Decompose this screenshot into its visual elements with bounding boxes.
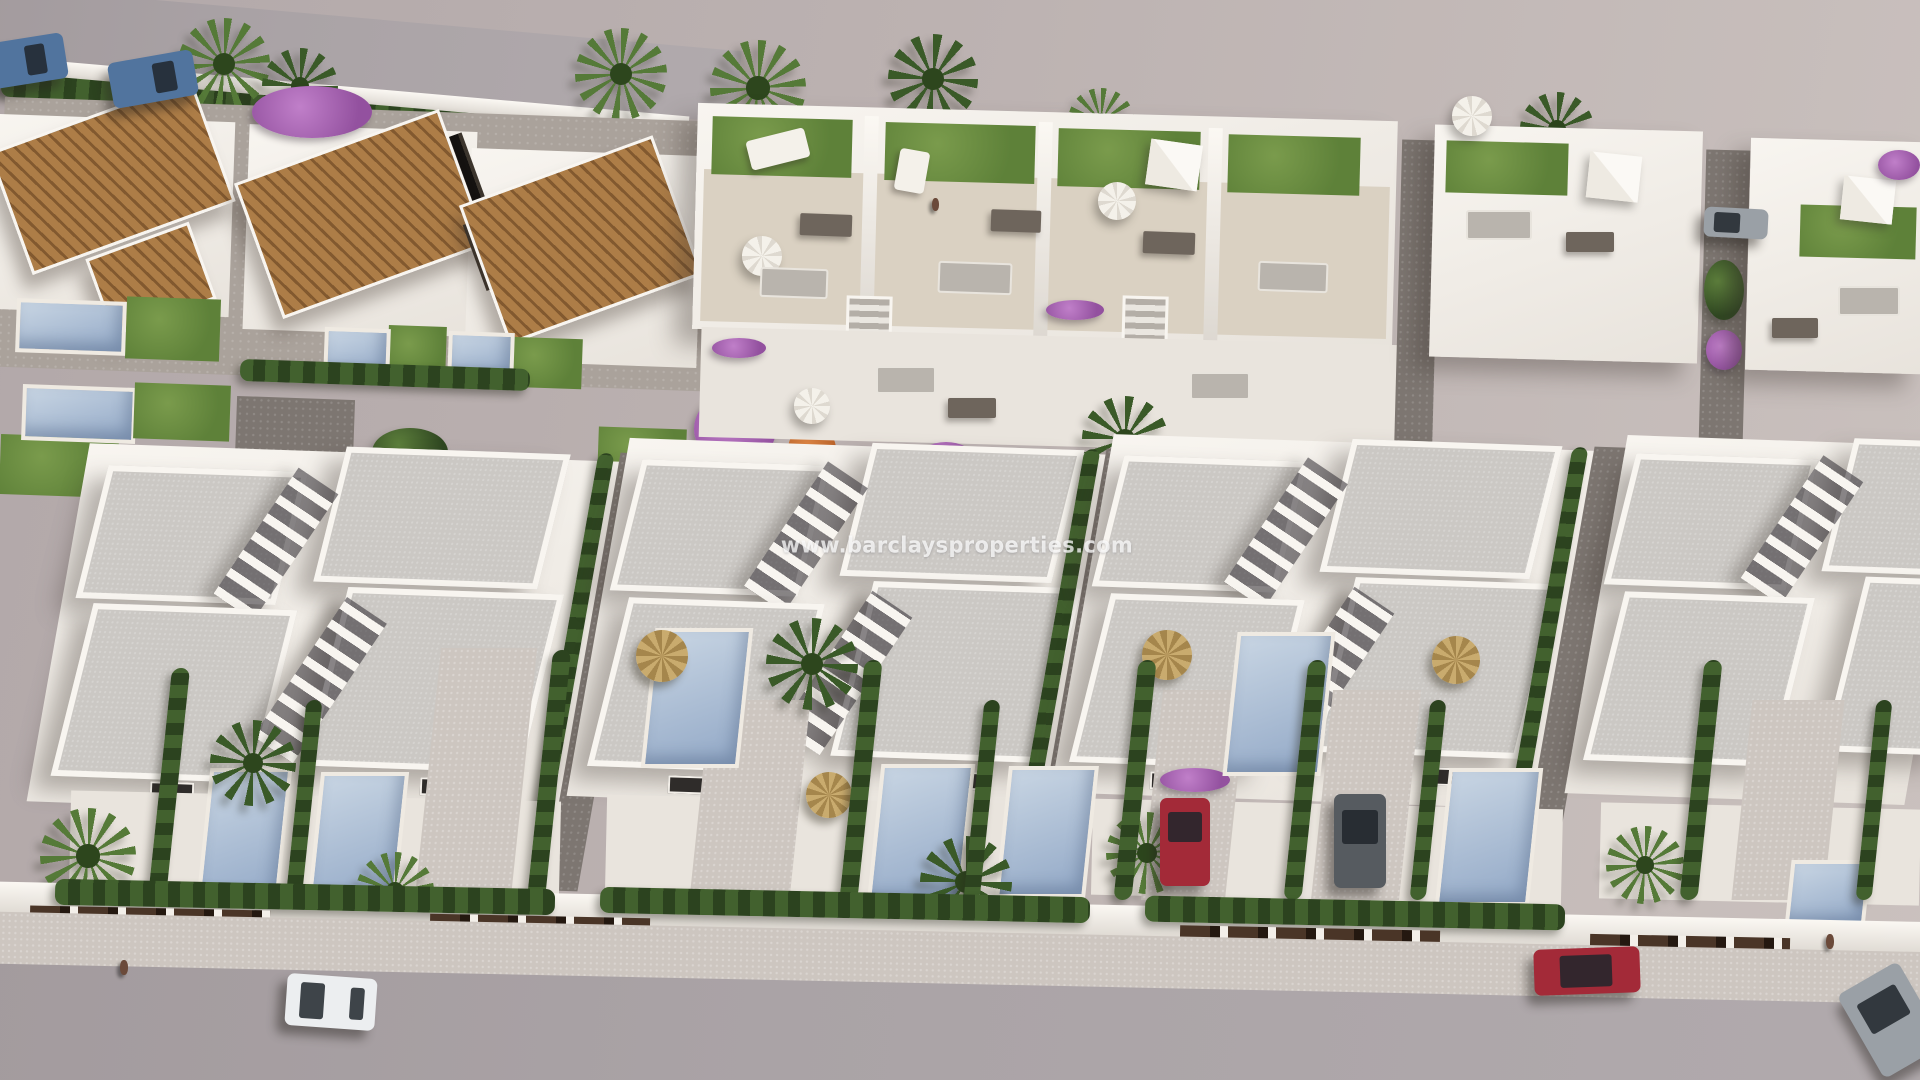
silver-car (1703, 206, 1768, 239)
swimming-pool (15, 298, 127, 356)
outdoor-sofa (1257, 261, 1328, 293)
aerial-development-render: www.barclaysproperties.com (0, 0, 1920, 1080)
car-roof-glass (1559, 954, 1612, 988)
white-parasol (1452, 96, 1492, 136)
white-parasol (1840, 175, 1896, 224)
flat-roof (839, 443, 1084, 583)
car-windshield (1168, 812, 1202, 842)
dining-table (1143, 231, 1196, 255)
dining-table (1772, 318, 1818, 338)
straw-parasol (806, 772, 852, 818)
white-parasol (1145, 139, 1203, 192)
outdoor-sofa (937, 261, 1012, 296)
planter-purple-flowers (712, 338, 766, 358)
dining-table (991, 209, 1042, 233)
palm-tree (575, 28, 667, 120)
watermark: www.barclaysproperties.com (781, 534, 1133, 559)
roof-planter-purple (1878, 150, 1920, 180)
alley-bush-purple (1706, 330, 1742, 370)
palm-tree (1606, 826, 1684, 904)
planter-purple-flowers (1046, 300, 1104, 320)
garden-lawn (125, 296, 221, 361)
roof-terrace-lawn (1227, 134, 1360, 195)
swimming-pool (21, 384, 137, 444)
straw-parasol (636, 630, 688, 682)
banana-palm (210, 720, 296, 806)
car-windshield (151, 60, 178, 93)
carport-planter-purple (1160, 768, 1230, 792)
outdoor-sofa (1190, 372, 1250, 400)
bougainvillea-bush (252, 86, 372, 138)
white-parasol (794, 388, 830, 424)
dark-parked-car (1334, 794, 1386, 888)
car-rear-window (349, 987, 365, 1020)
car-windshield (1342, 810, 1378, 844)
outdoor-sofa (876, 366, 936, 394)
outdoor-sofa (759, 267, 828, 299)
pedestrian (932, 198, 939, 211)
dining-table (948, 398, 996, 418)
car-windshield (299, 982, 325, 1020)
outdoor-sofa (1466, 210, 1532, 240)
car-windshield (24, 43, 48, 76)
flat-roof (313, 447, 570, 590)
car-windshield (1856, 984, 1911, 1035)
outdoor-sofa (1838, 286, 1900, 316)
swimming-pool (1435, 768, 1544, 906)
dining-table (1566, 232, 1614, 252)
dining-table (800, 213, 853, 237)
alley-bush (1704, 260, 1744, 320)
pedestrian (120, 960, 128, 975)
straw-parasol (1432, 636, 1480, 684)
banana-palm (766, 618, 858, 710)
flat-roof (1319, 439, 1562, 579)
car-windshield (1714, 212, 1741, 233)
white-moving-car (284, 973, 377, 1031)
pedestrian (1826, 934, 1834, 949)
white-parasol (1098, 182, 1136, 220)
red-parked-car (1160, 798, 1210, 886)
red-moving-car (1533, 946, 1641, 996)
garden-lawn (133, 382, 231, 441)
roof-terrace-lawn (1445, 140, 1568, 195)
white-parasol (1586, 151, 1643, 202)
